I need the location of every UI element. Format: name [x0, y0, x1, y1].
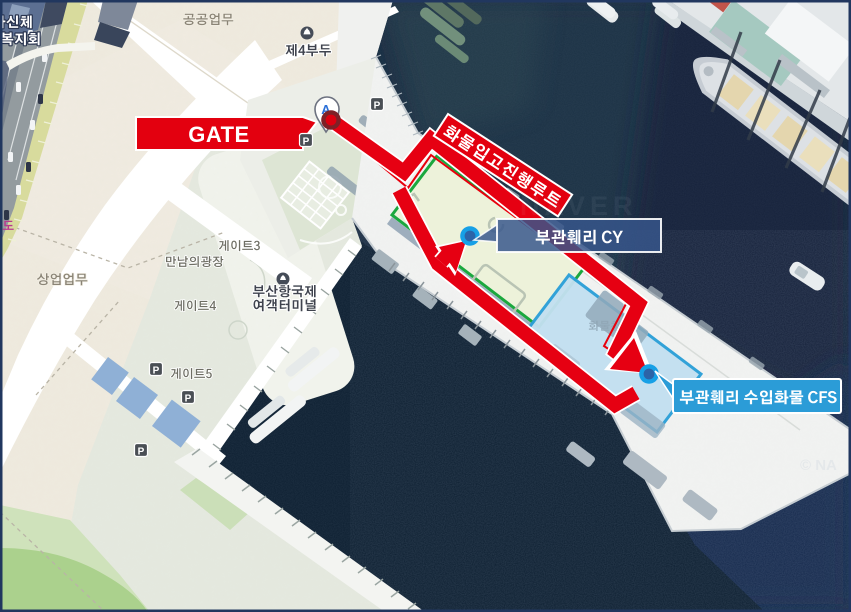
- svg-text:P: P: [303, 137, 310, 148]
- svg-text:NAVER: NAVER: [520, 191, 638, 221]
- svg-text:© NA: © NA: [800, 457, 837, 474]
- svg-text:P: P: [374, 101, 381, 112]
- svg-text:GATE: GATE: [188, 122, 249, 147]
- svg-text:P: P: [153, 366, 160, 377]
- svg-text:P: P: [185, 394, 192, 405]
- svg-text:P: P: [138, 447, 145, 458]
